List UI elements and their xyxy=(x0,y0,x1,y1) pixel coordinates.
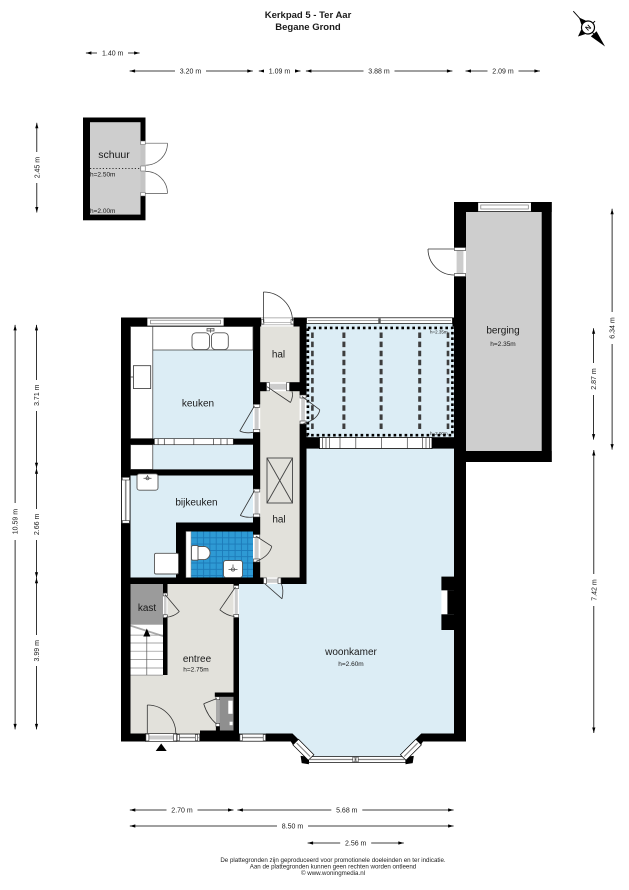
svg-text:8.50 m: 8.50 m xyxy=(282,824,304,831)
svg-text:2.66 m: 2.66 m xyxy=(34,514,41,536)
svg-text:h=2.75m: h=2.75m xyxy=(183,667,208,674)
svg-text:entree: entree xyxy=(183,654,212,665)
svg-text:3.20 m: 3.20 m xyxy=(180,69,202,76)
svg-text:2.70 m: 2.70 m xyxy=(171,808,193,815)
svg-text:schuur: schuur xyxy=(98,149,130,161)
svg-text:2.56 m: 2.56 m xyxy=(345,841,367,848)
svg-text:h=2.35m: h=2.35m xyxy=(430,330,448,335)
svg-text:berging: berging xyxy=(486,326,519,337)
svg-text:woonkamer: woonkamer xyxy=(324,647,377,658)
svg-text:Kerkpad 5 - Ter Aar: Kerkpad 5 - Ter Aar xyxy=(265,10,352,21)
svg-text:keuken: keuken xyxy=(182,399,214,410)
svg-text:bijkeuken: bijkeuken xyxy=(175,498,217,509)
svg-text:3.99 m: 3.99 m xyxy=(34,640,41,662)
svg-text:hal: hal xyxy=(272,350,285,361)
svg-text:2.45 m: 2.45 m xyxy=(34,157,41,179)
svg-text:5.68 m: 5.68 m xyxy=(336,808,358,815)
svg-text:3.88 m: 3.88 m xyxy=(368,69,390,76)
svg-text:hal: hal xyxy=(272,515,285,526)
svg-text:h=2.60m: h=2.60m xyxy=(338,661,363,668)
svg-text:kast: kast xyxy=(138,603,157,614)
svg-text:h=2.35m: h=2.35m xyxy=(490,341,515,348)
svg-text:1.40 m: 1.40 m xyxy=(102,51,124,58)
svg-text:h=2.50m: h=2.50m xyxy=(90,172,115,179)
svg-text:2.09 m: 2.09 m xyxy=(492,69,514,76)
svg-text:10.59 m: 10.59 m xyxy=(13,509,20,534)
svg-text:2.87 m: 2.87 m xyxy=(591,368,598,390)
svg-text:© www.woningmedia.nl: © www.woningmedia.nl xyxy=(301,870,365,877)
svg-text:h=2.00m: h=2.00m xyxy=(90,208,115,215)
svg-text:6.34 m: 6.34 m xyxy=(610,317,617,339)
svg-text:h=2.00m: h=2.00m xyxy=(430,431,448,436)
svg-text:3.71 m: 3.71 m xyxy=(34,384,41,406)
svg-text:Begane Grond: Begane Grond xyxy=(275,22,341,33)
svg-text:1.09 m: 1.09 m xyxy=(269,69,291,76)
svg-text:7.42 m: 7.42 m xyxy=(591,579,598,601)
